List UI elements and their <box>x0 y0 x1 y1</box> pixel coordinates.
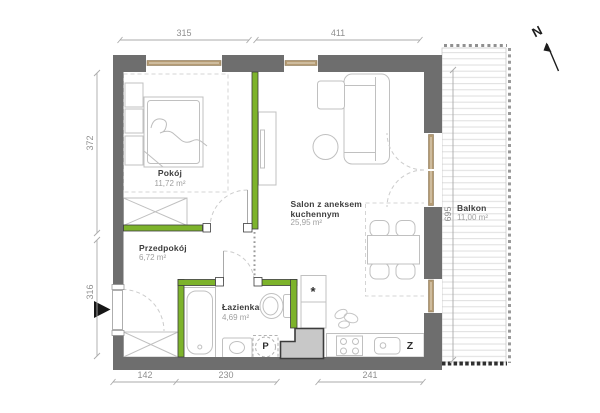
room-label-lazienka: Łazienka <box>222 302 260 312</box>
dim-top-315: 315 <box>154 28 214 38</box>
room-label-pokoj: Pokój <box>138 168 202 178</box>
partition-bedroom-livingroom <box>252 72 258 229</box>
room-label-przedpokoj: Przedpokój <box>139 243 187 253</box>
coffee-table <box>313 135 338 160</box>
room-area-przedpokoj: 6,72 m² <box>139 253 166 262</box>
chair <box>370 263 389 279</box>
sofa-chaise <box>318 81 345 109</box>
washing-machine-label: P <box>259 341 273 352</box>
dishwasher-label: Z <box>402 340 418 352</box>
dim-left-316: 316 <box>85 277 95 307</box>
chair <box>396 263 415 279</box>
bed <box>144 97 203 167</box>
tv-console <box>259 112 277 185</box>
room-area-salon: 25,95 m² <box>291 218 323 227</box>
wall-end-cap <box>216 278 224 287</box>
bedroom-door-arc <box>210 190 248 228</box>
wall-right <box>424 207 442 279</box>
entrance-door-arc <box>123 290 165 332</box>
partition-bathroom-top-left <box>178 280 216 286</box>
room-area-pokoj: 11,72 m² <box>138 179 202 188</box>
dim-top-411: 411 <box>308 28 368 38</box>
nightstand <box>125 136 143 165</box>
kitchen-cabinet <box>301 302 326 328</box>
room-label-balkon: Balkon <box>457 203 487 213</box>
north-arrow-icon <box>544 43 559 72</box>
bathroom-sink <box>223 338 253 358</box>
bathtub <box>184 288 216 358</box>
room-label-salon-line1: Salon z aneksem <box>291 199 363 209</box>
entrance-marker <box>94 301 111 318</box>
installation-shaft <box>281 329 324 359</box>
nightstand <box>125 109 143 133</box>
partition-bedroom-hall <box>124 225 203 231</box>
wall-right <box>424 313 442 370</box>
wall-right <box>424 55 442 133</box>
dimension-lines <box>94 37 456 385</box>
balcony-door-divider <box>427 169 435 171</box>
floor-plan: Pokój 11,72 m² Salon z aneksem kuchennym… <box>0 0 600 413</box>
furniture-layer <box>124 74 426 359</box>
wall-top <box>222 55 284 72</box>
sofa <box>344 74 390 164</box>
wardrobe-cross <box>124 198 188 226</box>
entrance-jamb <box>112 331 124 336</box>
wall-bottom <box>113 357 442 370</box>
dining-table <box>368 236 420 265</box>
dim-bottom-230: 230 <box>196 370 256 380</box>
tv <box>261 130 265 168</box>
star-marker: * <box>307 284 320 299</box>
wall-end-cap <box>244 224 253 233</box>
balcony-door-arc-upper <box>387 133 424 170</box>
dim-bottom-142: 142 <box>115 370 175 380</box>
entrance-door-leaf <box>113 291 123 330</box>
room-area-lazienka: 4,69 m² <box>222 313 249 322</box>
entrance-jamb <box>112 285 124 290</box>
wall-end-cap <box>254 278 262 287</box>
room-label-salon-line2: kuchennym <box>291 209 340 219</box>
balcony-door-arc-lower <box>387 170 424 207</box>
wall-left <box>113 55 124 289</box>
wall-top <box>318 55 442 72</box>
room-area-balkon: 11,00 m² <box>457 213 488 222</box>
plant <box>333 307 359 328</box>
bathroom-door-arc <box>224 251 255 282</box>
chair <box>370 221 389 237</box>
hall-wardrobe-cross <box>124 332 179 357</box>
nightstand <box>125 83 143 107</box>
dim-bottom-241: 241 <box>340 370 400 380</box>
dim-left-372: 372 <box>85 128 95 158</box>
wall-end-cap <box>203 224 211 233</box>
dim-balcony-695: 695 <box>443 199 453 229</box>
partition-bathroom-right <box>291 280 298 329</box>
chair <box>396 221 415 237</box>
partition-bathroom-left <box>178 280 184 358</box>
